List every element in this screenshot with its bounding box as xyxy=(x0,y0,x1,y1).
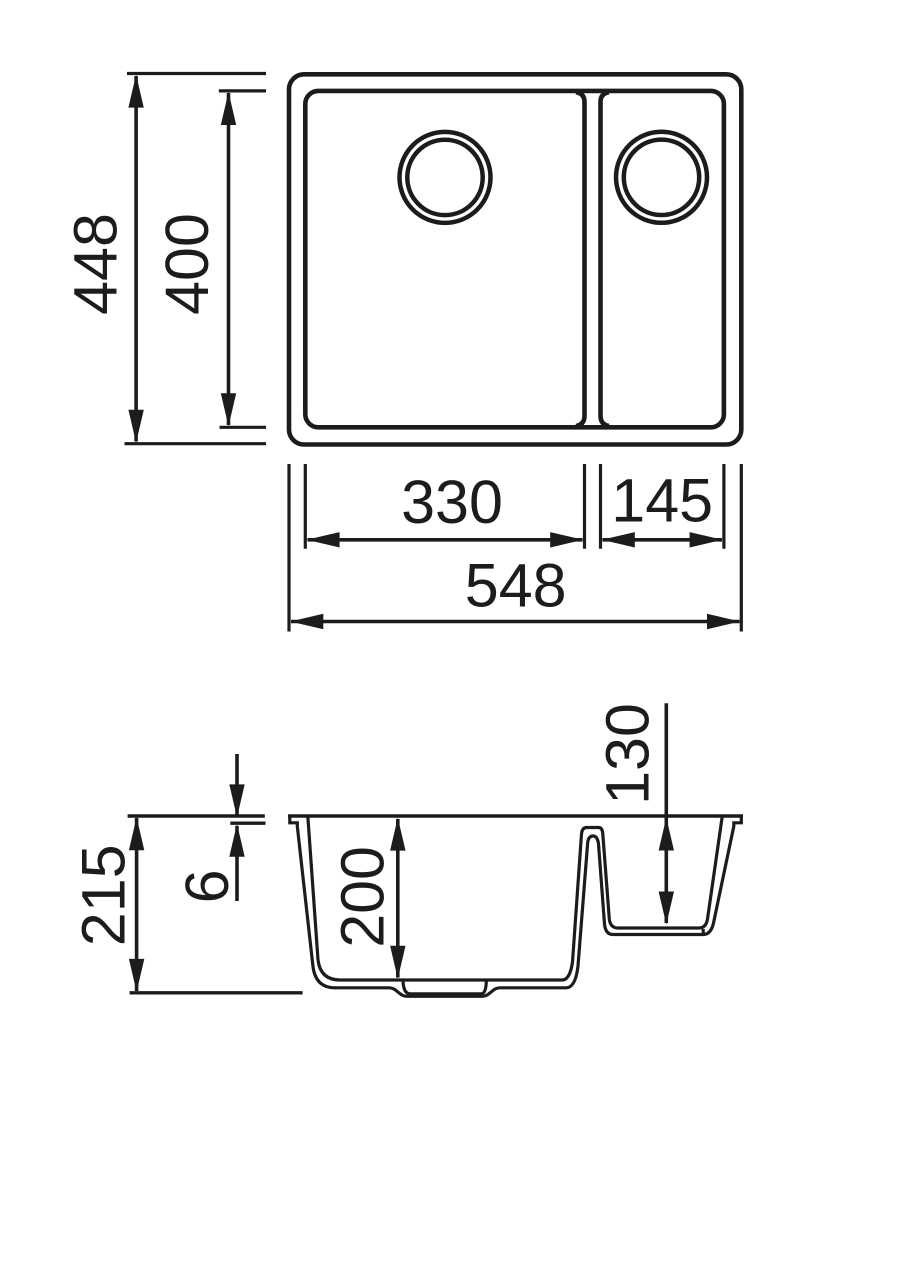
svg-text:130: 130 xyxy=(594,703,662,805)
svg-text:200: 200 xyxy=(329,846,397,948)
svg-text:400: 400 xyxy=(153,213,221,315)
svg-text:6: 6 xyxy=(173,869,241,903)
svg-text:330: 330 xyxy=(401,468,503,536)
svg-text:548: 548 xyxy=(465,551,567,619)
svg-text:215: 215 xyxy=(70,844,138,946)
svg-text:448: 448 xyxy=(62,213,130,315)
svg-text:145: 145 xyxy=(611,467,713,535)
